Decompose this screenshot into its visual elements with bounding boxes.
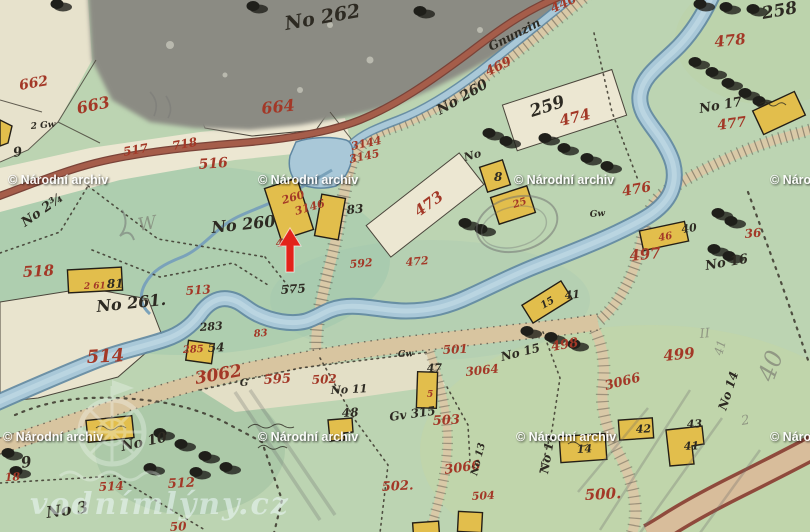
tree-icon-part	[722, 78, 735, 88]
map-annotation: G	[240, 378, 250, 389]
parcel-number: 504	[471, 489, 495, 503]
tree-icon-part	[712, 208, 725, 218]
map-annotation: 47	[426, 361, 442, 375]
rock-area-part	[166, 41, 174, 49]
parcel-number: 592	[349, 256, 373, 271]
tree-icon-part	[521, 326, 534, 336]
map-annotation: 54	[207, 340, 224, 355]
map-annotation: 41	[564, 288, 580, 302]
site-watermark-text: vodnímlýny.cz	[30, 487, 290, 522]
rock-area-part	[297, 87, 303, 93]
archive-watermark: © Národní archiv	[3, 430, 103, 444]
map-annotation: Gw	[398, 349, 414, 360]
parcel-number: 478	[714, 30, 748, 51]
parcel-number: 472	[405, 254, 429, 269]
map-annotation: 283	[198, 319, 223, 334]
map-annotation: 43	[686, 417, 702, 431]
tree-icon-part	[483, 128, 496, 138]
map-annotation: Gw	[589, 209, 605, 220]
tree-icon-part	[459, 218, 472, 228]
archive-watermark: © Národní archiv	[258, 173, 358, 187]
map-annotation: 41	[683, 439, 699, 453]
tree-icon-part	[558, 143, 571, 153]
tree-icon-part	[539, 133, 552, 143]
map-annotation: 48	[341, 405, 359, 420]
tree-icon-part	[747, 4, 760, 14]
map-annotation: 81	[107, 276, 124, 291]
parcel-number: 664	[260, 96, 295, 118]
archive-watermark: © Národní archiv	[516, 430, 616, 444]
tree-icon-part	[2, 448, 15, 458]
tree-icon-part	[199, 451, 212, 461]
map-annotation: 575	[280, 281, 306, 297]
parcel-number: 514	[86, 345, 125, 368]
archive-watermark: © Národní archiv	[8, 173, 108, 187]
map-annotation: 42	[635, 422, 651, 436]
parcel-number: 2 61	[83, 281, 106, 292]
rock-area-part	[477, 27, 483, 33]
building	[457, 511, 482, 532]
rock-area-part	[367, 57, 374, 64]
tree-icon-part	[220, 462, 233, 472]
cadastral-map-image: 6626636645177185163144314544046947847447…	[0, 0, 810, 532]
map-annotation: 83	[346, 202, 364, 217]
parcel-number: 5	[427, 390, 433, 400]
tree-icon-part	[247, 1, 260, 11]
archive-watermark: © Národní archiv	[258, 430, 358, 444]
tree-icon-part	[414, 6, 427, 16]
parcel-number: 36	[744, 226, 763, 241]
tree-icon-part	[601, 161, 614, 171]
parcel-number: 595	[263, 372, 291, 388]
parcel-number: 285	[182, 344, 204, 356]
parcel-number: 83	[253, 328, 268, 340]
tree-icon-part	[725, 216, 738, 226]
map-annotation: 40	[681, 221, 698, 236]
tree-icon-part	[581, 153, 594, 163]
tree-icon-part	[689, 57, 702, 67]
parcel-number: 502.	[381, 478, 413, 495]
parcel-number: 18	[4, 470, 20, 484]
archive-watermark: © Národní archiv	[770, 430, 810, 444]
parcel-number: 503	[432, 413, 460, 429]
parcel-number: 501	[442, 342, 468, 357]
map-canvas: 6626636645177185163144314544046947847447…	[0, 0, 810, 532]
pencil-annotation: II	[698, 326, 711, 342]
parcel-number: 516	[198, 155, 229, 173]
tree-icon-part	[500, 136, 513, 146]
map-annotation: No 11	[329, 382, 367, 397]
archive-watermark: © Národní archiv	[770, 173, 810, 187]
map-annotation: 14	[576, 442, 592, 456]
parcel-number: 499	[663, 344, 697, 365]
archive-watermark: © Národní archiv	[514, 173, 614, 187]
parcel-number: 500.	[584, 484, 621, 504]
tree-icon-part	[708, 244, 721, 254]
parcel-number: 497	[629, 244, 663, 265]
rock-area-part	[223, 73, 228, 78]
tree-icon-part	[753, 96, 766, 106]
parcel-number: 518	[22, 261, 55, 281]
parcel-number: 513	[185, 282, 211, 298]
tree-icon-part	[720, 2, 733, 12]
tree-icon-part	[175, 439, 188, 449]
map-annotation: 8	[494, 170, 503, 184]
tree-icon-part	[706, 67, 719, 77]
building	[413, 521, 440, 532]
